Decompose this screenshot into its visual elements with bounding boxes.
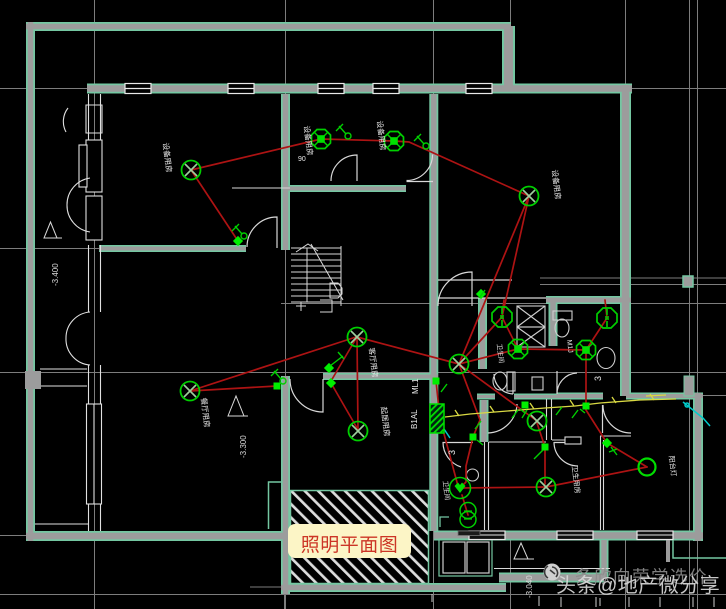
- svg-text:-3.400: -3.400: [51, 263, 60, 286]
- svg-text:90: 90: [298, 156, 306, 163]
- svg-text:3: 3: [593, 376, 603, 381]
- svg-text:照明平面图: 照明平面图: [301, 535, 399, 556]
- svg-text:-3.040: -3.040: [525, 575, 534, 598]
- svg-text:ML1: ML1: [411, 378, 420, 394]
- svg-text:3: 3: [447, 450, 457, 455]
- svg-text:头条@地产微分享: 头条@地产微分享: [556, 574, 720, 597]
- svg-text:-3.300: -3.300: [239, 435, 248, 458]
- svg-text:B1AL: B1AL: [410, 409, 419, 429]
